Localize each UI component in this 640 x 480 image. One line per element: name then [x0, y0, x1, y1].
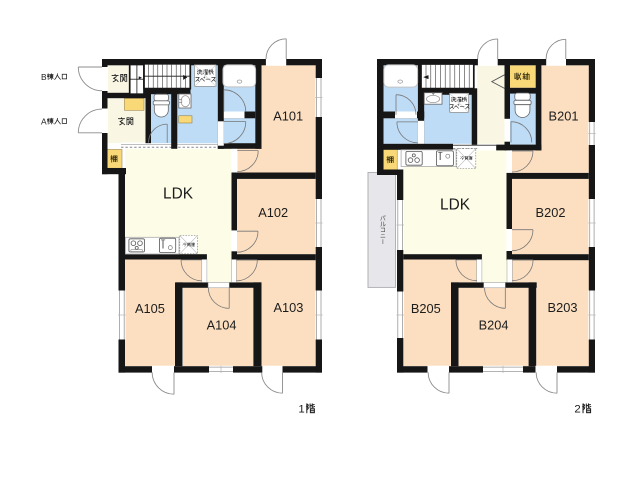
svg-text:2: 2 [574, 404, 580, 416]
svg-text:B: B [41, 72, 47, 82]
svg-text:A104: A104 [207, 318, 237, 333]
svg-text:B204: B204 [479, 318, 509, 333]
svg-text:B205: B205 [411, 301, 441, 316]
svg-text:LDK: LDK [440, 197, 471, 214]
svg-text:A: A [41, 116, 47, 126]
svg-text:A103: A103 [273, 300, 303, 315]
svg-text:B203: B203 [548, 300, 578, 315]
svg-text:B201: B201 [549, 109, 579, 124]
svg-text:A101: A101 [273, 109, 303, 124]
svg-text:A105: A105 [135, 301, 165, 316]
svg-text:LDK: LDK [163, 186, 194, 203]
svg-text:B202: B202 [536, 205, 566, 220]
svg-text:A102: A102 [258, 205, 288, 220]
svg-text:1: 1 [298, 404, 304, 416]
